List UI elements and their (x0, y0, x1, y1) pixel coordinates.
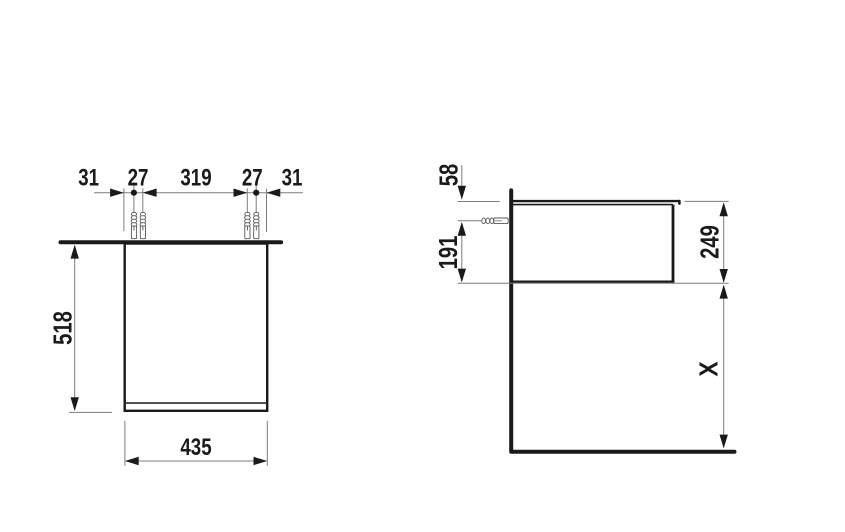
svg-text:31: 31 (78, 164, 99, 191)
svg-text:191: 191 (434, 236, 463, 270)
svg-text:X: X (695, 361, 724, 377)
svg-text:249: 249 (695, 225, 724, 259)
svg-text:435: 435 (180, 434, 211, 461)
svg-text:58: 58 (434, 164, 463, 187)
svg-text:319: 319 (180, 164, 211, 191)
svg-text:518: 518 (48, 311, 77, 345)
svg-text:31: 31 (282, 164, 303, 191)
svg-text:27: 27 (128, 164, 149, 191)
svg-text:27: 27 (242, 164, 263, 191)
